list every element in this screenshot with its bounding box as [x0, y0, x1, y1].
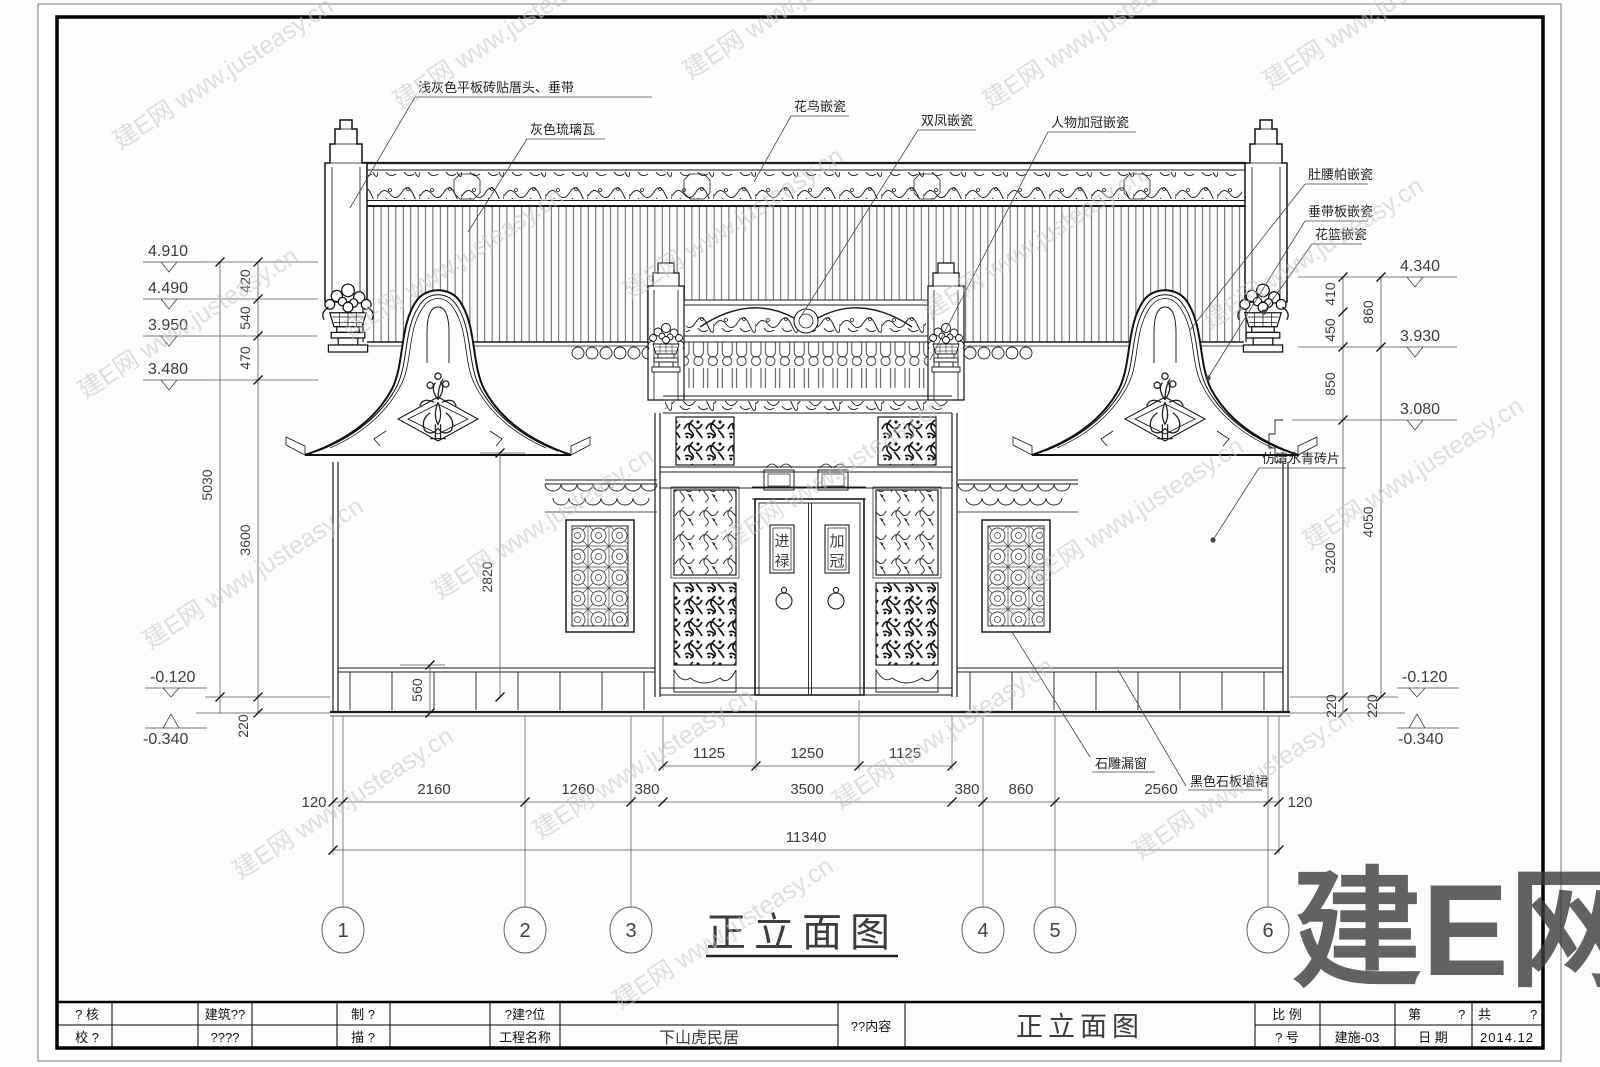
dim-value: 1250 — [790, 745, 823, 762]
tb-cell: ? 核 — [75, 1007, 99, 1022]
plaque-char: 禄 — [774, 553, 789, 570]
level-value: -0.120 — [150, 669, 195, 686]
tb-cell: ? — [1530, 1007, 1537, 1022]
level-value: 4.340 — [1400, 258, 1440, 275]
axis-number: 6 — [1262, 920, 1273, 942]
tb-cell: 制 ? — [351, 1007, 375, 1022]
drawing-title: 正立面图 — [706, 911, 898, 956]
axis-number: 1 — [337, 920, 348, 942]
dim-value: 470 — [237, 346, 253, 370]
level-value: -0.120 — [1402, 669, 1447, 686]
ridge-frieze-ornament — [368, 172, 1242, 199]
level-value: 4.910 — [148, 243, 188, 260]
dim-value: 120 — [1287, 794, 1312, 811]
tb-cell: 建筑?? — [205, 1007, 245, 1022]
main-door-frame — [755, 499, 864, 695]
annotation-label: 仿清水青砖片 — [1262, 451, 1340, 466]
tb-cell: 校 ? — [75, 1030, 99, 1045]
project-name: 下山虎民居 — [659, 1029, 739, 1047]
dim-value: 5030 — [199, 469, 215, 500]
annotation-label: 浅灰色平板砖贴厝头、垂带 — [418, 80, 574, 95]
left-ridge-finial — [325, 120, 367, 302]
tb-cell: 描 ? — [351, 1030, 375, 1045]
dim-value: 2820 — [479, 561, 495, 592]
level-value: 4.490 — [148, 280, 188, 297]
elevation-drawing-canvas: 进 禄 加 冠 4.910 4.490 3.950 — [0, 0, 1600, 1067]
annotation-label: 肚腰帕嵌瓷 — [1308, 167, 1373, 182]
dim-value: 3600 — [237, 524, 253, 555]
dim-value: 860 — [1360, 300, 1376, 324]
annotation-label: 灰色琉璃瓦 — [530, 122, 595, 137]
tb-cell: 比 例 — [1272, 1007, 1302, 1022]
left-floral-panel — [674, 583, 736, 665]
dim-value: 1125 — [693, 745, 725, 762]
dim-value: 3200 — [1322, 542, 1338, 573]
dim-value: 4050 — [1360, 506, 1376, 537]
plaque-char: 进 — [774, 533, 789, 550]
dim-value: 120 — [301, 794, 326, 811]
right-ridge-finial — [1245, 120, 1287, 302]
dim-value: 3500 — [790, 781, 823, 798]
tb-cell: ? 号 — [1275, 1030, 1299, 1045]
round-tile-band — [684, 342, 928, 388]
dim-value: 1125 — [889, 745, 921, 762]
dim-value: 380 — [954, 781, 979, 798]
drawing-number: 建施-03 — [1335, 1030, 1380, 1045]
tb-cell: ? — [1458, 1007, 1465, 1022]
date-value: 2014.12 — [1480, 1030, 1534, 1045]
right-floral-panel — [876, 583, 938, 665]
dim-value: 2160 — [417, 781, 450, 798]
axis-number: 3 — [625, 920, 636, 942]
dim-value: 2560 — [1144, 781, 1177, 798]
level-value: -0.340 — [1398, 731, 1443, 748]
level-value: 3.930 — [1400, 328, 1440, 345]
dim-value: 380 — [634, 781, 659, 798]
dim-value: 860 — [1008, 781, 1033, 798]
tb-cell: 共 — [1478, 1007, 1491, 1022]
tb-cell: 工程名称 — [499, 1030, 551, 1045]
door-lintel-frieze — [753, 489, 865, 498]
tb-cell: ?建?位 — [505, 1007, 545, 1022]
level-value: 3.080 — [1400, 401, 1440, 418]
crane-relief-panel — [674, 490, 736, 575]
right-top-figure-panel — [878, 417, 936, 465]
annotation-label: 花鸟嵌瓷 — [794, 99, 846, 114]
dim-value: 220 — [1323, 694, 1339, 718]
axis-number: 5 — [1049, 920, 1060, 942]
tb-cell: 第 — [1408, 1007, 1421, 1022]
tb-cell: ??内容 — [851, 1019, 891, 1034]
annotation-label: 石雕漏窗 — [1095, 756, 1147, 771]
dim-value: 220 — [235, 714, 251, 738]
tb-cell: 日 期 — [1418, 1030, 1448, 1045]
level-value: -0.340 — [143, 731, 188, 748]
level-value: 3.950 — [148, 317, 188, 334]
titleblock-drawing-title: 正立面图 — [1016, 1012, 1144, 1042]
dim-value: 850 — [1322, 372, 1338, 396]
dim-value: 220 — [1364, 694, 1380, 718]
drawing-title-text: 正立面图 — [706, 911, 898, 955]
annotation-label: 花篮嵌瓷 — [1315, 227, 1367, 242]
big-watermark: 建E网 — [1292, 857, 1600, 1003]
level-value: 3.480 — [148, 361, 188, 378]
left-top-figure-panel — [676, 417, 734, 465]
annotation-label: 双凤嵌瓷 — [921, 113, 973, 128]
dim-value: 450 — [1322, 318, 1338, 342]
plaque-char: 冠 — [829, 553, 844, 570]
dim-value: 560 — [409, 678, 425, 702]
dim-total-value: 11340 — [786, 829, 827, 846]
tb-cell: ???? — [211, 1030, 240, 1045]
dim-value: 1260 — [561, 781, 594, 798]
dim-value: 540 — [237, 306, 253, 330]
deer-relief-panel — [876, 490, 938, 575]
entrance-bay — [648, 263, 964, 697]
plaque-char: 加 — [829, 533, 844, 550]
drawing-sheet: 进 禄 加 冠 4.910 4.490 3.950 — [0, 0, 1600, 1067]
dim-value: 420 — [237, 269, 253, 293]
dim-value: 410 — [1322, 282, 1338, 306]
annotation-label: 黑色石板墙裙 — [1190, 774, 1268, 789]
axis-number: 2 — [519, 920, 530, 942]
axis-number: 4 — [977, 920, 988, 942]
annotation-label: 垂带板嵌瓷 — [1308, 204, 1373, 219]
annotation-label: 人物加冠嵌瓷 — [1051, 115, 1129, 130]
floral-frieze-band — [665, 401, 950, 412]
